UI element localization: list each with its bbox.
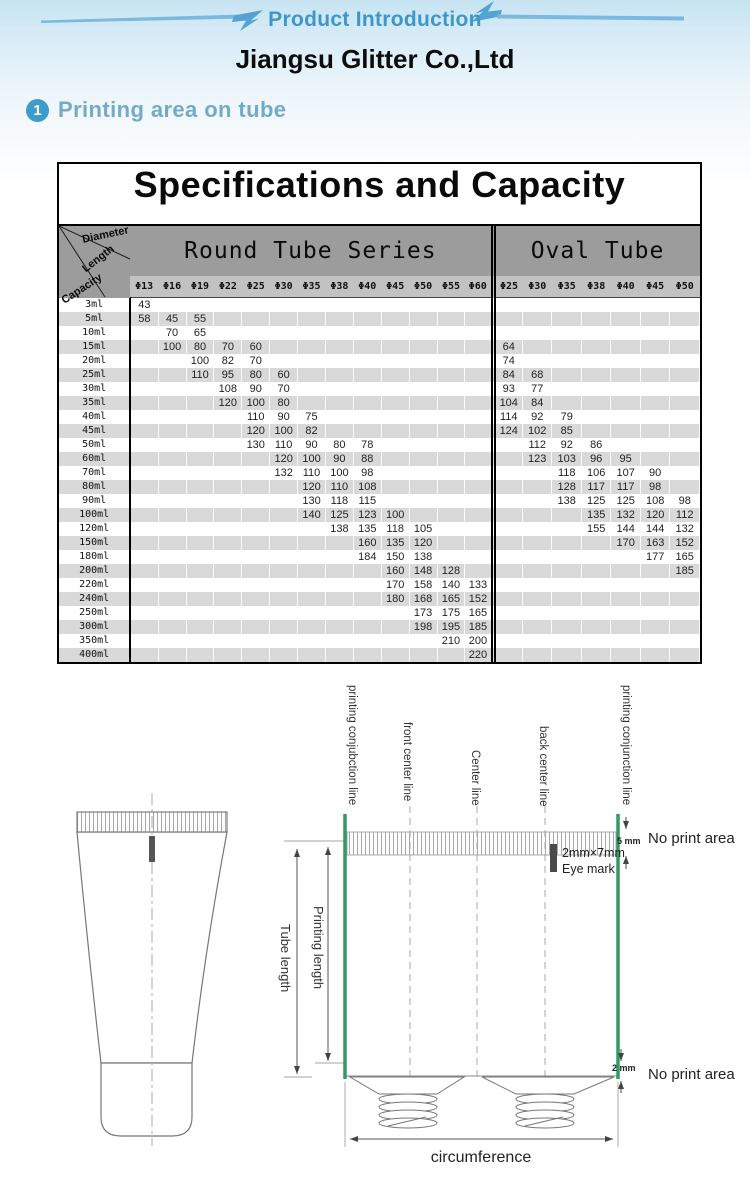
eye-mark-size-label: 2mm×7mm — [562, 846, 625, 860]
length-cell: 86 — [581, 438, 610, 452]
length-cell — [214, 592, 242, 606]
length-cell — [298, 396, 326, 410]
length-cell — [381, 634, 409, 648]
length-cell — [186, 480, 214, 494]
diameter-column-header: Φ13 — [130, 276, 158, 298]
length-cell — [670, 438, 700, 452]
length-cell — [214, 494, 242, 508]
length-cell — [214, 298, 242, 312]
length-cell — [270, 592, 298, 606]
length-cell — [130, 550, 158, 564]
table-row: 180ml184150138177165 — [59, 550, 700, 564]
length-cell: 125 — [581, 494, 610, 508]
label-back-center-line: back center line — [537, 726, 549, 807]
length-cell: 133 — [465, 578, 493, 592]
length-cell — [437, 438, 465, 452]
length-cell — [409, 340, 437, 354]
length-cell — [409, 354, 437, 368]
length-cell — [130, 494, 158, 508]
length-cell — [670, 396, 700, 410]
length-cell — [353, 564, 381, 578]
length-cell — [158, 648, 186, 662]
length-cell — [130, 578, 158, 592]
length-cell — [270, 564, 298, 578]
length-cell: 168 — [409, 592, 437, 606]
length-cell: 107 — [611, 466, 640, 480]
length-cell: 80 — [325, 438, 353, 452]
length-cell — [552, 606, 581, 620]
length-cell — [158, 452, 186, 466]
length-cell: 165 — [465, 606, 493, 620]
capacity-row-label: 120ml — [59, 522, 130, 536]
length-cell: 110 — [242, 410, 270, 424]
length-cell: 163 — [640, 536, 669, 550]
length-cell — [158, 396, 186, 410]
length-cell — [522, 606, 551, 620]
length-cell — [353, 354, 381, 368]
length-cell — [325, 606, 353, 620]
length-cell — [640, 326, 669, 340]
length-cell — [353, 578, 381, 592]
capacity-row-label: 400ml — [59, 648, 130, 662]
length-cell: 135 — [381, 536, 409, 550]
length-cell — [611, 438, 640, 452]
length-cell — [130, 536, 158, 550]
length-cell: 74 — [493, 354, 522, 368]
length-cell — [353, 368, 381, 382]
length-cell — [437, 466, 465, 480]
column-header-row: Φ13Φ16Φ19Φ22Φ25Φ30Φ35Φ38Φ40Φ45Φ50Φ55Φ60Φ… — [59, 276, 700, 298]
length-cell — [381, 396, 409, 410]
length-cell — [353, 410, 381, 424]
length-cell — [381, 438, 409, 452]
length-cell — [611, 326, 640, 340]
length-cell — [298, 536, 326, 550]
length-cell — [325, 340, 353, 354]
length-cell — [493, 606, 522, 620]
length-cell — [581, 354, 610, 368]
length-cell — [186, 536, 214, 550]
length-cell — [493, 536, 522, 550]
length-cell — [409, 438, 437, 452]
length-cell — [130, 480, 158, 494]
table-row: 240ml180168165152 — [59, 592, 700, 606]
length-cell — [611, 592, 640, 606]
diameter-column-header: Φ35 — [552, 276, 581, 298]
length-cell — [581, 550, 610, 564]
capacity-row-label: 100ml — [59, 508, 130, 522]
length-cell — [186, 550, 214, 564]
length-cell — [552, 312, 581, 326]
length-cell — [130, 438, 158, 452]
length-cell — [581, 326, 610, 340]
length-cell — [298, 606, 326, 620]
length-cell — [640, 648, 669, 662]
length-cell — [670, 480, 700, 494]
table-row: 45ml1201008212410285 — [59, 424, 700, 438]
length-cell — [522, 354, 551, 368]
length-cell — [465, 396, 493, 410]
length-cell — [670, 620, 700, 634]
length-cell — [381, 298, 409, 312]
length-cell — [214, 326, 242, 340]
length-cell — [437, 410, 465, 424]
length-cell — [493, 480, 522, 494]
length-cell — [325, 592, 353, 606]
length-cell — [437, 354, 465, 368]
length-cell — [242, 606, 270, 620]
capacity-row-label: 10ml — [59, 326, 130, 340]
length-cell — [640, 354, 669, 368]
length-cell — [493, 634, 522, 648]
length-cell: 200 — [465, 634, 493, 648]
length-cell — [437, 550, 465, 564]
length-cell — [298, 592, 326, 606]
length-cell — [670, 410, 700, 424]
length-cell — [381, 326, 409, 340]
length-cell: 152 — [670, 536, 700, 550]
length-cell — [581, 396, 610, 410]
length-cell — [522, 522, 551, 536]
length-cell — [214, 522, 242, 536]
length-cell — [581, 340, 610, 354]
length-cell: 58 — [130, 312, 158, 326]
length-cell: 120 — [640, 508, 669, 522]
table-row: 15ml10080706064 — [59, 340, 700, 354]
capacity-row-label: 90ml — [59, 494, 130, 508]
length-cell — [409, 494, 437, 508]
length-cell — [611, 634, 640, 648]
page: Product Introduction Jiangsu Glitter Co.… — [0, 0, 750, 1200]
diameter-column-header: Φ38 — [581, 276, 610, 298]
length-cell — [270, 312, 298, 326]
length-cell — [325, 396, 353, 410]
length-cell: 125 — [611, 494, 640, 508]
length-cell: 123 — [522, 452, 551, 466]
length-cell — [130, 326, 158, 340]
length-cell: 123 — [353, 508, 381, 522]
capacity-row-label: 180ml — [59, 550, 130, 564]
length-cell — [214, 466, 242, 480]
length-cell — [214, 438, 242, 452]
length-cell — [522, 494, 551, 508]
length-cell — [381, 340, 409, 354]
length-cell — [353, 396, 381, 410]
length-cell — [409, 508, 437, 522]
length-cell — [158, 620, 186, 634]
length-cell — [611, 620, 640, 634]
printing-area-diagram: Tube length Printing length — [0, 680, 750, 1200]
length-cell — [242, 550, 270, 564]
length-cell — [242, 564, 270, 578]
length-cell — [493, 466, 522, 480]
length-cell — [493, 494, 522, 508]
length-cell — [581, 424, 610, 438]
length-cell — [465, 452, 493, 466]
length-cell — [552, 382, 581, 396]
capacity-row-label: 250ml — [59, 606, 130, 620]
length-cell — [409, 634, 437, 648]
group-header-round-tube: Round Tube Series — [130, 226, 493, 276]
length-cell — [158, 592, 186, 606]
label-front-center-line: front center line — [401, 722, 413, 801]
length-cell — [298, 368, 326, 382]
diameter-column-header: Φ45 — [381, 276, 409, 298]
length-cell — [437, 452, 465, 466]
length-cell — [409, 396, 437, 410]
length-cell — [158, 466, 186, 480]
capacity-row-label: 20ml — [59, 354, 130, 368]
length-cell — [493, 648, 522, 662]
length-cell — [522, 340, 551, 354]
length-cell — [409, 298, 437, 312]
length-cell — [465, 536, 493, 550]
length-cell — [298, 382, 326, 396]
section-number-badge: 1 — [26, 99, 49, 122]
length-cell — [214, 410, 242, 424]
length-cell: 82 — [298, 424, 326, 438]
length-cell: 110 — [270, 438, 298, 452]
length-cell: 120 — [298, 480, 326, 494]
length-cell: 88 — [353, 452, 381, 466]
length-cell: 96 — [581, 452, 610, 466]
length-cell — [325, 424, 353, 438]
length-cell: 128 — [552, 480, 581, 494]
diameter-column-header: Φ40 — [353, 276, 381, 298]
length-cell — [465, 298, 493, 312]
length-cell: 112 — [670, 508, 700, 522]
length-cell — [409, 382, 437, 396]
length-cell — [186, 466, 214, 480]
length-cell — [325, 550, 353, 564]
length-cell: 124 — [493, 424, 522, 438]
length-cell: 90 — [270, 410, 298, 424]
length-cell — [325, 410, 353, 424]
length-cell — [242, 494, 270, 508]
length-cell — [214, 508, 242, 522]
length-cell — [437, 494, 465, 508]
length-cell — [186, 508, 214, 522]
length-cell: 64 — [493, 340, 522, 354]
length-cell: 98 — [640, 480, 669, 494]
length-cell — [611, 396, 640, 410]
diameter-column-header: Φ19 — [186, 276, 214, 298]
length-cell — [409, 452, 437, 466]
table-row: 5ml584555 — [59, 312, 700, 326]
length-cell — [640, 298, 669, 312]
eye-mark-label: Eye mark — [562, 862, 616, 876]
length-cell — [158, 536, 186, 550]
table-row: 70ml1321101009811810610790 — [59, 466, 700, 480]
length-cell — [522, 536, 551, 550]
table-row: 50ml1301109080781129286 — [59, 438, 700, 452]
length-cell: 84 — [522, 396, 551, 410]
table-row: 35ml1201008010484 — [59, 396, 700, 410]
section-title: Printing area on tube — [58, 97, 286, 123]
length-cell — [381, 424, 409, 438]
length-cell — [186, 648, 214, 662]
length-cell — [298, 298, 326, 312]
length-cell — [522, 550, 551, 564]
length-cell: 132 — [670, 522, 700, 536]
length-cell — [214, 578, 242, 592]
length-cell — [270, 578, 298, 592]
length-cell — [242, 312, 270, 326]
length-cell — [581, 634, 610, 648]
length-cell — [493, 312, 522, 326]
length-cell: 79 — [552, 410, 581, 424]
length-cell: 92 — [522, 410, 551, 424]
capacity-row-label: 60ml — [59, 452, 130, 466]
length-cell — [130, 620, 158, 634]
length-cell: 110 — [186, 368, 214, 382]
capacity-row-label: 50ml — [59, 438, 130, 452]
length-cell — [437, 508, 465, 522]
diameter-column-header: Φ50 — [670, 276, 700, 298]
length-cell: 138 — [325, 522, 353, 536]
length-cell — [381, 312, 409, 326]
length-cell — [437, 522, 465, 536]
spec-table-container: Specifications and Capacity DiameterLeng… — [57, 162, 702, 664]
length-cell — [670, 354, 700, 368]
length-cell — [325, 578, 353, 592]
length-cell: 220 — [465, 648, 493, 662]
length-cell — [130, 522, 158, 536]
length-cell: 108 — [353, 480, 381, 494]
length-cell — [298, 634, 326, 648]
printing-length-label: Printing length — [311, 906, 326, 989]
length-cell — [381, 480, 409, 494]
length-cell — [493, 564, 522, 578]
length-cell — [670, 606, 700, 620]
length-cell — [214, 452, 242, 466]
length-cell: 144 — [640, 522, 669, 536]
table-row: 300ml198195185 — [59, 620, 700, 634]
length-cell — [522, 508, 551, 522]
length-cell: 144 — [611, 522, 640, 536]
length-cell — [581, 620, 610, 634]
length-cell: 138 — [409, 550, 437, 564]
diameter-column-header: Φ55 — [437, 276, 465, 298]
length-cell: 78 — [353, 438, 381, 452]
length-cell — [214, 564, 242, 578]
length-cell: 180 — [381, 592, 409, 606]
length-cell — [670, 312, 700, 326]
length-cell — [437, 298, 465, 312]
tube-eye-mark — [149, 836, 155, 862]
length-cell — [214, 550, 242, 564]
length-cell — [298, 340, 326, 354]
length-cell — [640, 340, 669, 354]
length-cell — [242, 326, 270, 340]
length-cell — [581, 536, 610, 550]
length-cell: 175 — [437, 606, 465, 620]
length-cell — [670, 578, 700, 592]
length-cell: 150 — [381, 550, 409, 564]
length-cell — [353, 648, 381, 662]
length-cell — [242, 466, 270, 480]
length-cell — [381, 382, 409, 396]
table-row: 200ml160148128185 — [59, 564, 700, 578]
length-cell — [409, 326, 437, 340]
length-cell — [130, 396, 158, 410]
length-cell — [437, 382, 465, 396]
length-cell — [325, 298, 353, 312]
length-cell — [640, 592, 669, 606]
group-header-row: DiameterLengthCapacityRound Tube SeriesO… — [59, 226, 700, 276]
length-cell — [186, 410, 214, 424]
length-cell: 118 — [381, 522, 409, 536]
length-cell — [158, 606, 186, 620]
length-cell — [493, 438, 522, 452]
diameter-column-header: Φ25 — [493, 276, 522, 298]
length-cell — [640, 634, 669, 648]
length-cell — [298, 354, 326, 368]
length-cell: 210 — [437, 634, 465, 648]
length-cell — [186, 606, 214, 620]
length-cell — [522, 648, 551, 662]
length-cell: 148 — [409, 564, 437, 578]
length-cell — [493, 522, 522, 536]
capacity-row-label: 45ml — [59, 424, 130, 438]
length-cell — [640, 564, 669, 578]
length-cell — [552, 634, 581, 648]
length-cell — [186, 620, 214, 634]
diameter-column-header: Φ30 — [522, 276, 551, 298]
length-cell: 155 — [581, 522, 610, 536]
capacity-row-label: 35ml — [59, 396, 130, 410]
length-cell — [522, 634, 551, 648]
length-cell: 103 — [552, 452, 581, 466]
length-cell — [186, 522, 214, 536]
circumference-label: circumference — [431, 1149, 532, 1166]
table-row: 60ml12010090881231039695 — [59, 452, 700, 466]
label-printing-conjunction-right: printing conjunction line — [620, 685, 632, 805]
length-cell — [381, 466, 409, 480]
length-cell — [552, 536, 581, 550]
length-cell — [465, 382, 493, 396]
no-print-area-top-label: No print area — [648, 830, 735, 847]
length-cell — [270, 340, 298, 354]
corner-cell: DiameterLengthCapacity — [59, 226, 130, 298]
length-cell — [186, 494, 214, 508]
length-cell — [186, 578, 214, 592]
length-cell — [381, 452, 409, 466]
length-cell — [465, 508, 493, 522]
length-cell: 100 — [270, 424, 298, 438]
length-cell — [325, 326, 353, 340]
length-cell — [130, 466, 158, 480]
length-cell: 100 — [242, 396, 270, 410]
length-cell: 160 — [381, 564, 409, 578]
length-cell — [270, 480, 298, 494]
length-cell — [381, 368, 409, 382]
length-cell: 185 — [670, 564, 700, 578]
diameter-column-header: Φ38 — [325, 276, 353, 298]
length-cell — [270, 522, 298, 536]
length-cell: 140 — [437, 578, 465, 592]
length-cell: 185 — [465, 620, 493, 634]
length-cell — [552, 522, 581, 536]
length-cell — [493, 452, 522, 466]
length-cell: 92 — [552, 438, 581, 452]
length-cell: 98 — [353, 466, 381, 480]
length-cell: 115 — [353, 494, 381, 508]
banner-title: Product Introduction — [0, 8, 750, 32]
length-cell: 184 — [353, 550, 381, 564]
length-cell: 68 — [522, 368, 551, 382]
length-cell — [214, 480, 242, 494]
